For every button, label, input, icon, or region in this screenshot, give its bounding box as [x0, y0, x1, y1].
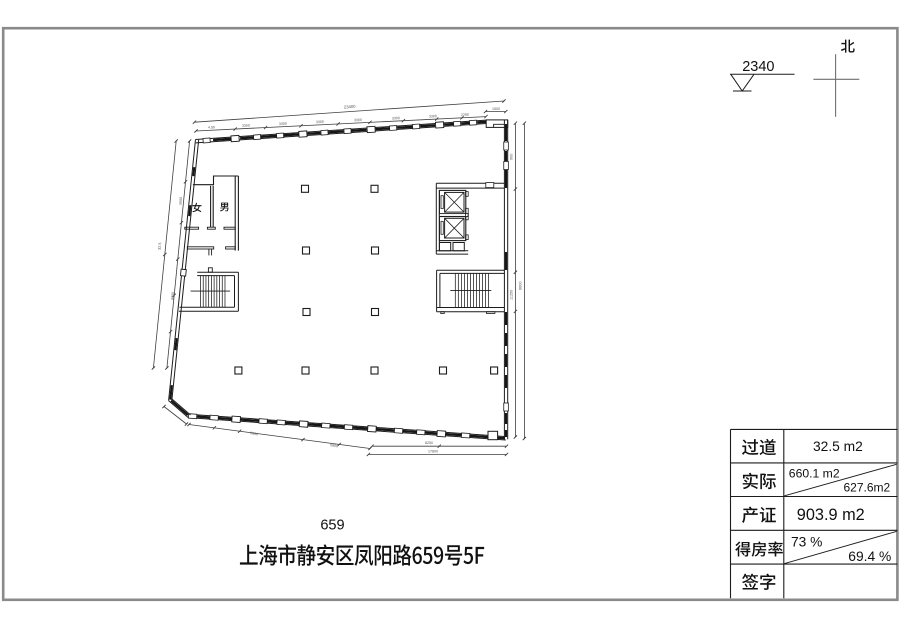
- svg-text:3300: 3300: [316, 120, 324, 124]
- svg-text:900: 900: [510, 154, 514, 160]
- svg-text:23400: 23400: [344, 104, 357, 110]
- svg-text:5600: 5600: [179, 197, 184, 205]
- svg-text:1500: 1500: [492, 107, 500, 111]
- svg-text:3300: 3300: [429, 114, 437, 118]
- svg-text:11250: 11250: [510, 290, 514, 300]
- svg-text:32.5 m2: 32.5 m2: [813, 439, 863, 454]
- svg-text:2250: 2250: [461, 113, 469, 117]
- svg-text:903.9 m2: 903.9 m2: [797, 506, 865, 524]
- svg-text:73 %: 73 %: [791, 534, 822, 549]
- svg-text:4.50: 4.50: [208, 125, 215, 129]
- svg-text:6600: 6600: [519, 282, 523, 290]
- svg-text:8000: 8000: [171, 292, 176, 300]
- svg-text:2340: 2340: [742, 59, 774, 75]
- svg-text:17800: 17800: [428, 450, 438, 454]
- svg-text:3300: 3300: [392, 116, 400, 120]
- svg-text:3300: 3300: [279, 122, 287, 126]
- svg-text:3300: 3300: [354, 118, 362, 122]
- svg-text:660.1 m2: 660.1 m2: [789, 466, 840, 480]
- svg-text:32.5: 32.5: [158, 242, 163, 250]
- svg-text:3300: 3300: [242, 123, 250, 127]
- svg-text:627.6m2: 627.6m2: [844, 480, 891, 494]
- svg-text:659: 659: [320, 518, 344, 534]
- svg-text:69.4 %: 69.4 %: [848, 549, 891, 564]
- svg-text:8250: 8250: [425, 441, 433, 445]
